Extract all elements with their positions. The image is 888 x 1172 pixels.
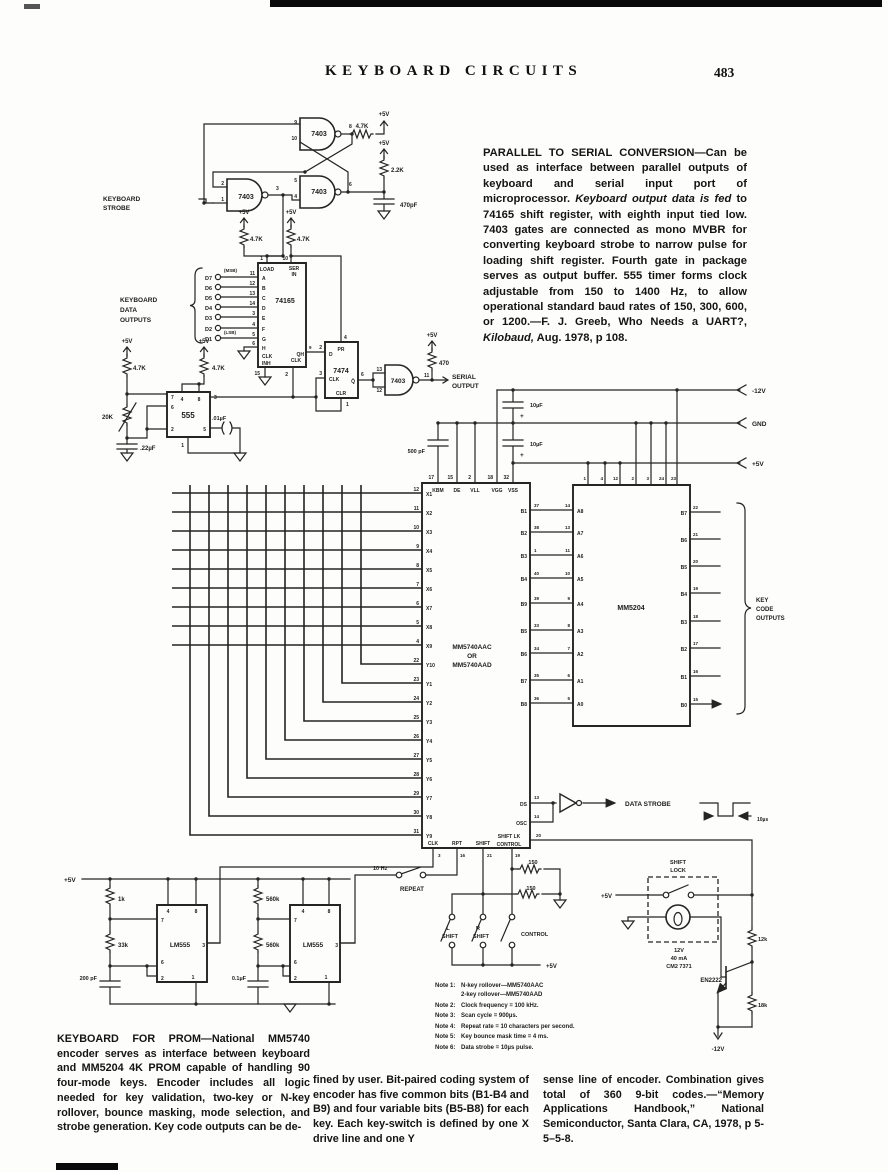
schematic-label: 24 [413,696,419,702]
schematic-label: 1 [221,197,224,203]
schematic-label: 8 [198,397,201,403]
schematic-label: VGG [491,488,502,494]
schematic-label: 20K [102,415,114,421]
schematic-label: D5 [205,296,212,302]
data-strobe-circuit [530,794,751,822]
schematic-label: OUTPUTS [120,317,152,324]
schematic-label: 10µs [757,817,768,823]
switch-repeat: REPEAT [400,887,424,893]
schematic-label: 3 [438,853,441,858]
ic-lm555-1: LM555 [170,942,191,949]
brace-key-code-outputs [737,503,751,714]
schematic-label: 2 [294,976,297,982]
schematic-label: 1 [325,975,328,981]
schematic-label: OUTPUTS [756,616,785,622]
schematic-label: A8 [577,509,584,515]
schematic-label: INH [262,361,271,367]
schematic-label: MM5740AAD [452,662,492,669]
schematic-label: 1 [192,975,195,981]
schematic-label: 26 [413,734,419,740]
schematic-label: 10 [282,256,288,262]
schematic-label: 4 [181,397,184,403]
schematic-label: 2 [161,976,164,982]
schematic-label: A2 [577,652,584,658]
schematic-label: Q̄ [351,378,355,385]
schematic-label: 7 [161,918,164,924]
schematic-label: 4.7K [212,366,225,372]
caption-keyboard-for-prom-col2: fined by user. Bit-paired coding system … [313,1073,529,1147]
schematic-label: B7 [681,511,688,517]
schematic-label: X3 [426,530,432,536]
schematic-label: +5V [601,894,612,900]
schematic-label: 15 [447,475,453,481]
schematic-label: E [262,316,266,322]
net-serial-output: SERIAL [452,374,476,381]
schematic-label: Data strobe = 10µs pulse. [461,1045,534,1051]
schematic-svg: KEYBOARDSTROBE7403213740391087403546+5V4… [0,0,888,1172]
schematic-label: +5V [199,339,210,345]
schematic-label: 12 [376,388,382,394]
schematic-label: +5V [286,210,297,216]
schematic-label: +5V [239,210,250,216]
schematic-label: B4 [521,577,528,583]
schematic-labels: KEYBOARDSTROBE7403213740391087403546+5V4… [64,112,785,1053]
schematic-label: D6 [205,286,212,292]
schematic-label: Y4 [426,739,432,745]
schematic-label: G [262,337,266,343]
schematic-label: B6 [681,538,688,544]
schematic-label: Y2 [426,701,432,707]
schematic-label: SHIFT [473,934,490,940]
net-data-strobe: DATA STROBE [625,801,671,808]
schematic-label: 560k [266,943,280,949]
schematic-label: + [520,452,524,459]
note-5: Note 5: [435,1034,455,1040]
strobe-waveform-icon [700,803,750,816]
schematic-label: 7 [171,395,174,401]
schematic-label: CONTROL [497,842,522,848]
schematic-label: 3 [252,311,255,317]
schematic-label: 150 [526,886,535,892]
schematic-label: 38 [534,525,540,530]
schematic-label: DS [520,802,528,808]
switch-shift-lock: SHIFT [670,860,687,866]
schematic-label: 7 [567,646,570,651]
schematic-label: B3 [521,554,528,560]
schematic-label: 34 [534,646,540,651]
schematic-label: 8 [567,623,570,628]
schematic-label: 33 [534,623,540,628]
schematic-label: 21 [693,532,699,537]
schematic-label: 1 [534,548,537,553]
power-rails [428,385,746,485]
schematic-label: X9 [426,644,432,650]
schematic-label: 470pF [400,203,418,209]
schematic-label: F [262,327,265,333]
schematic-label: 8 [328,909,331,915]
schematic-label: X4 [426,549,432,555]
caption-keyboard-for-prom-col3: sense line of encoder. Combination gives… [543,1073,764,1147]
schematic-label: 11 [250,271,256,277]
schematic-label: + [520,413,524,420]
schematic-label: 10µF [530,442,543,448]
schematic-label: 4.7K [133,366,146,372]
schematic-label: 22 [693,505,699,510]
inverter-icon [560,794,576,812]
schematic-label: 36 [534,696,540,701]
schematic-label: A0 [577,702,584,708]
schematic-label: 1 [181,443,184,449]
schematic-label: B1 [521,509,528,515]
schematic-label: 4 [416,639,419,645]
schematic-label: -12V [712,1047,725,1053]
schematic-label: 9 [309,345,312,350]
net-keyboard-strobe: KEYBOARD [103,196,141,203]
schematic-label: 19 [515,853,521,858]
schematic-label: 40 [534,571,540,576]
schematic-label: D4 [205,306,213,312]
note-3: Note 3: [435,1013,455,1019]
schematic-label: 25 [413,715,419,721]
schematic-label: 16 [693,669,699,674]
schematic-label: 560k [266,897,280,903]
caption-keyboard-for-prom-col1: KEYBOARD FOR PROM—National MM5740 encode… [57,1032,310,1135]
schematic-label: 12 [613,476,619,481]
schematic-label: B2 [521,531,528,537]
schematic-label: 1 [346,402,349,408]
schematic-label: 8 [416,563,419,569]
schematic-label: 3 [214,395,217,401]
schematic-label: 4 [252,322,255,328]
schematic-label: Y6 [426,777,432,783]
schematic-label: VSS [508,488,519,494]
schematic-label: CLK [262,354,273,360]
schematic-label: 4 [600,476,603,481]
schematic-label: C [262,296,266,302]
schematic-label: 2 [285,372,288,378]
schematic-label: 18k [758,1003,768,1009]
schematic-label: 39 [534,596,540,601]
schematic-label: 14 [249,301,255,307]
schematic-label: X1 [426,492,432,498]
schematic-label: +5V [546,964,557,970]
schematic-label: 6 [161,960,164,966]
schematic-label: KEYBOARD [120,297,158,304]
schematic-label: D2 [205,327,212,333]
schematic-label: 29 [413,791,419,797]
schematic-label: 32 [503,475,509,481]
schematic-label: 6 [349,182,352,188]
schematic-label: X2 [426,511,432,517]
schematic-label: 7 [416,582,419,588]
schematic-label: 4 [167,909,170,915]
schematic-label: 10µF [530,403,543,409]
schematic-label: 35 [534,673,540,678]
schematic-label: 470 [439,361,450,367]
schematic-label: 1 [260,256,263,262]
schematic-label: A7 [577,531,584,537]
schematic-label: 500 pF [408,449,426,455]
schematic-label: 7 [294,918,297,924]
schematic-label: +5V [379,112,390,118]
schematic-label: 3 [319,371,322,377]
ic-mm5204: MM5204 [617,605,644,612]
schematic-label: 6 [294,960,297,966]
schematic-label: Y7 [426,796,432,802]
schematic-label: 28 [413,772,419,778]
schematic-label: DATA [120,307,137,314]
schematic-label: X8 [426,625,432,631]
schematic-label: Clock frequency = 100 kHz. [461,1003,539,1009]
note-6: Note 6: [435,1045,455,1051]
schematic-label: 17 [693,641,699,646]
schematic-label: 15 [254,371,260,377]
schematic-label: 5 [252,332,255,338]
schematic-label: CLK [291,358,302,364]
book-page: KEYBOARD CIRCUITS 483 PARALLEL TO SERIAL… [0,0,888,1172]
schematic-label: 24 [659,476,665,481]
schematic-label: +5V [752,461,764,468]
schematic-label: 3 [646,476,649,481]
schematic-label: B1 [681,675,688,681]
schematic-label: 2 [221,181,224,187]
schematic-label: 6 [361,372,364,378]
schematic-label: 2 [171,427,174,433]
ic-7403-a: 7403 [238,194,254,201]
ic-7403-d: 7403 [391,378,406,385]
schematic-label: +5V [64,877,76,884]
schematic-label: Y9 [426,834,432,840]
schematic-label: Y10 [426,663,435,669]
schematic-label: 13 [534,795,540,800]
schematic-label: STROBE [103,205,131,212]
schematic-label: SHIFT [476,841,490,847]
schematic-label: 18 [487,475,493,481]
schematic-label: LOAD [260,267,275,273]
ic-555: 555 [181,411,195,420]
schematic-label: L [446,926,450,932]
schematic-label: LOCK [670,868,686,874]
schematic-label: D [329,352,333,358]
schematic-label: 20 [693,559,699,564]
note-4: Note 4: [435,1024,455,1030]
key-code-output-arrows [690,512,720,704]
schematic-label: Y5 [426,758,432,764]
schematic-label: GND [752,421,767,428]
schematic-label: R [476,926,480,932]
ic-7403-b: 7403 [311,131,327,138]
switch-control: CONTROL [521,932,549,938]
schematic-label: +5V [379,141,390,147]
ic-7403-c: 7403 [311,189,327,196]
schematic-label: 17 [428,475,434,481]
schematic-label: (MSB) [224,268,237,273]
schematic-label: 150 [528,860,537,866]
schematic-label: 6 [567,673,570,678]
schematic-label: A1 [577,679,584,685]
schematic-label: 4.7K [250,237,263,243]
schematic-label: 8 [349,124,352,130]
schematic-label: 9 [294,120,297,126]
schematic-label: 13 [565,525,571,530]
schematic-label: 10 Hz [373,866,388,872]
cap-500pf [428,423,448,483]
power-arrow-icon [737,385,746,468]
schematic-label: B6 [521,652,528,658]
schematic-label: A [262,276,266,282]
schematic-label: 31 [413,829,419,835]
key-matrix [172,485,422,835]
schematic-label: CLK [428,841,439,847]
schematic-label: 2 [468,475,471,481]
schematic-label: (LSB) [224,330,236,335]
schematic-label: B3 [681,620,688,626]
ic-lm555-2: LM555 [303,942,324,949]
schematic-label: OSC [516,821,527,827]
schematic-label: 12k [758,937,768,943]
schematic-label: 30 [413,810,419,816]
schematic-label: RPT [452,841,462,847]
schematic-label: CLK [329,377,340,383]
schematic-label: 40 mA [671,956,688,962]
schematic-label: 2-key rollover—MM5740AAD [461,992,543,998]
schematic-label: 0.1µF [232,976,247,982]
schematic-label: PR [338,347,345,353]
schematic-label: Repeat rate = 10 characters per second. [461,1024,575,1030]
schematic-label: 22 [413,658,419,664]
schematic-label: +5V [427,333,438,339]
schematic-label: 12V [674,948,684,954]
schematic-label: N-key rollover—MM5740AAC [461,983,544,989]
schematic-label: 3 [335,943,338,949]
schematic-label: B0 [681,703,688,709]
schematic-label: H [262,346,266,352]
brace-keyboard-data [190,268,202,343]
schematic-label: OUTPUT [452,383,479,390]
ic-74165: 74165 [275,298,295,305]
schematic-label: 4 [344,335,347,341]
schematic-label: X6 [426,587,432,593]
schematic-label: 2.2K [391,168,404,174]
schematic-label: 13 [376,367,382,373]
schematic-label: -12V [752,388,766,395]
schematic-label: 37 [534,503,540,508]
schematic-label: Y1 [426,682,432,688]
schematic-label: 4.7K [297,237,310,243]
schematic-label: 23 [671,476,677,481]
schematic-label: 19 [693,586,699,591]
schematic-label: A6 [577,554,584,560]
schematic-label: D7 [205,276,212,282]
schematic-label: 4.7K [356,124,369,130]
schematic-label: 6 [171,405,174,411]
schematic-label: DE [454,488,462,494]
schematic-label: 5 [294,178,297,184]
schematic-label: D3 [205,316,212,322]
schematic-label: 8 [195,909,198,915]
schematic-label: CM2 7371 [666,964,691,970]
schematic-label: 10 [413,525,419,531]
schematic-label: 27 [413,753,419,759]
schematic-label: 16 [460,853,466,858]
schematic-label: 12 [249,281,255,287]
schematic-label: X7 [426,606,432,612]
schematic-label: 10 [291,136,297,142]
schematic-label: OR [467,653,477,660]
schematic-label: 20 [536,833,542,838]
schematic-label: 11 [424,373,430,379]
schematic-label: KBM [432,488,443,494]
schematic-label: 5 [567,696,570,701]
schematic-label: 9 [416,544,419,550]
note-1: Note 1: [435,983,455,989]
schematic-label: B2 [681,647,688,653]
schematic-label: 5 [416,620,419,626]
schematic-label: A5 [577,577,584,583]
schematic-label: 6 [416,601,419,607]
schematic-label: B5 [521,629,528,635]
schematic-label: CLR [336,391,347,397]
schematic-label: QH [297,352,305,358]
schematic-label: 3 [276,186,279,192]
schematic-label: B7 [521,679,528,685]
schematic-label: 14 [565,503,571,508]
schematic-label: SHIFT [442,934,459,940]
schematic-label: 12 [413,487,419,493]
schematic-label: 13 [249,291,255,297]
transistor-en2222: EN2222 [700,978,722,984]
schematic-label: 10 [565,571,571,576]
schematic-label: SHIFT LK [498,834,521,840]
schematic-label: 4 [294,194,297,200]
ic-7474: 7474 [333,368,349,375]
schematic-label: 1 [583,476,586,481]
schematic-label: 1k [118,897,125,903]
schematic-label: B [262,286,266,292]
schematic-label: 23 [413,677,419,683]
schematic-label: 6 [252,341,255,347]
ic-mm5740: MM5740AAC [452,644,492,651]
schematic-label: 11 [565,548,570,553]
schematic-label: +5V [122,339,133,345]
schematic-label: B4 [681,592,688,598]
schematic-label: 9 [567,596,570,601]
schematic-label: .22µF [140,446,156,452]
schematic-label: IN [292,272,297,278]
schematic-label: CODE [756,607,773,613]
schematic-label: 18 [693,614,699,619]
schematic-label: 15 [693,697,699,702]
schematic-label: D [262,306,266,312]
schematic-label: A3 [577,629,584,635]
schematic-label: Y3 [426,720,432,726]
schematic-label: .01µF [212,416,227,422]
schematic-label: B8 [521,702,528,708]
schematic-label: A4 [577,602,584,608]
schematic-label: 2 [631,476,634,481]
schematic-label: 200 pF [80,976,98,982]
schematic-label: B5 [681,565,688,571]
schematic-label: 5 [203,427,206,433]
strobe-pulse-icon [199,199,213,203]
schematic-label: Scan cycle = 900µs. [461,1013,518,1019]
schematic-label: 14 [534,814,540,819]
mode-switches [207,840,752,967]
schematic-label: 4 [302,909,305,915]
schematic-label: Key bounce mask time = 4 ms. [461,1034,549,1040]
schematic-label: KEY [756,598,768,604]
schematic-label: VLL [470,488,479,494]
